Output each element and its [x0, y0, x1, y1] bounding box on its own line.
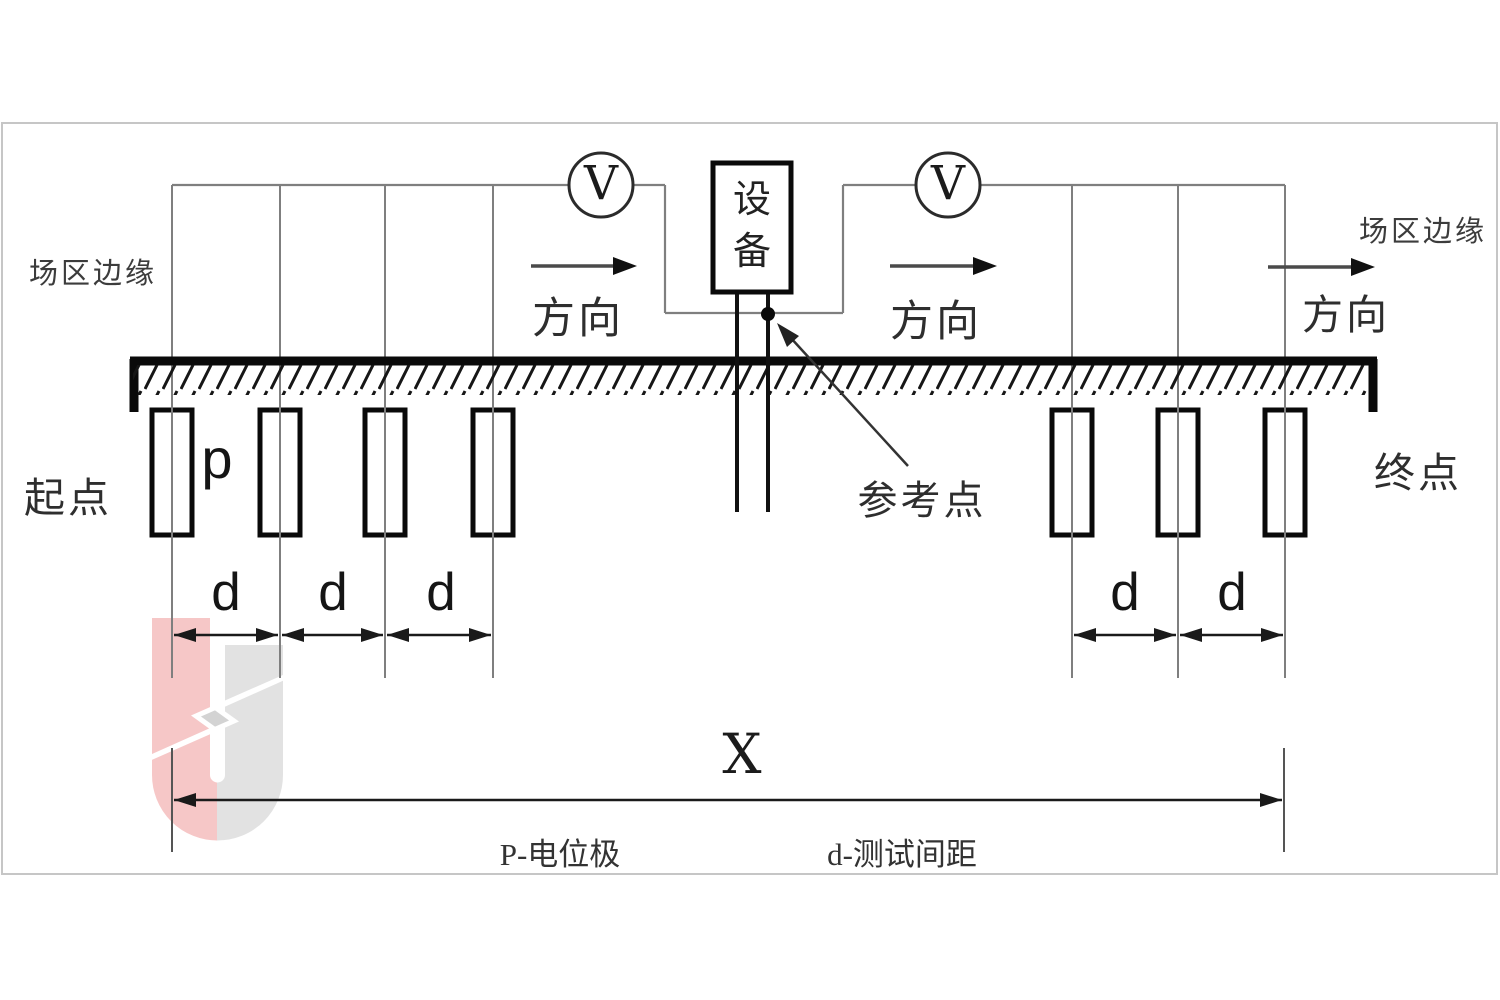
electrode-group — [152, 410, 1305, 535]
direction-arrowhead-left-icon — [613, 257, 637, 275]
legend-d-definition: d-测试间距 — [812, 829, 992, 874]
voltmeter-left-letter: V — [575, 156, 627, 211]
start-point-label: 起点 — [18, 464, 118, 524]
spacing-d-label-3: d — [421, 562, 461, 623]
field-edge-label-left: 场区边缘 — [20, 250, 166, 292]
equipment-label: 设备 — [730, 174, 774, 279]
potential-electrode-p-label: p — [196, 426, 238, 491]
end-point-label: 终点 — [1368, 439, 1468, 499]
direction-arrows — [531, 257, 1375, 276]
direction-label-middle: 方向 — [888, 287, 984, 349]
spacing-d-label-5: d — [1212, 562, 1252, 623]
legend-p-definition: P-电位极 — [490, 829, 630, 874]
diagram-canvas: 场区边缘 场区边缘 方向 方向 方向 起点 终点 参考点 设备 V V p d … — [0, 0, 1500, 1000]
direction-label-right: 方向 — [1298, 281, 1394, 341]
reference-point-dot — [761, 307, 775, 321]
direction-label-left: 方向 — [530, 284, 626, 346]
reference-callout-line — [790, 337, 908, 466]
total-distance-x-label: X — [714, 722, 770, 786]
reference-point-label: 参考点 — [851, 468, 993, 526]
field-edge-label-right: 场区边缘 — [1350, 208, 1496, 250]
direction-arrowhead-right-icon — [1351, 258, 1375, 276]
spacing-d-label-1: d — [206, 562, 246, 623]
ground-hatching — [133, 365, 1368, 395]
spacing-d-label-2: d — [313, 562, 353, 623]
voltmeter-right-letter: V — [922, 156, 974, 211]
direction-arrowhead-middle-icon — [973, 257, 997, 275]
spacing-d-label-4: d — [1105, 562, 1145, 623]
